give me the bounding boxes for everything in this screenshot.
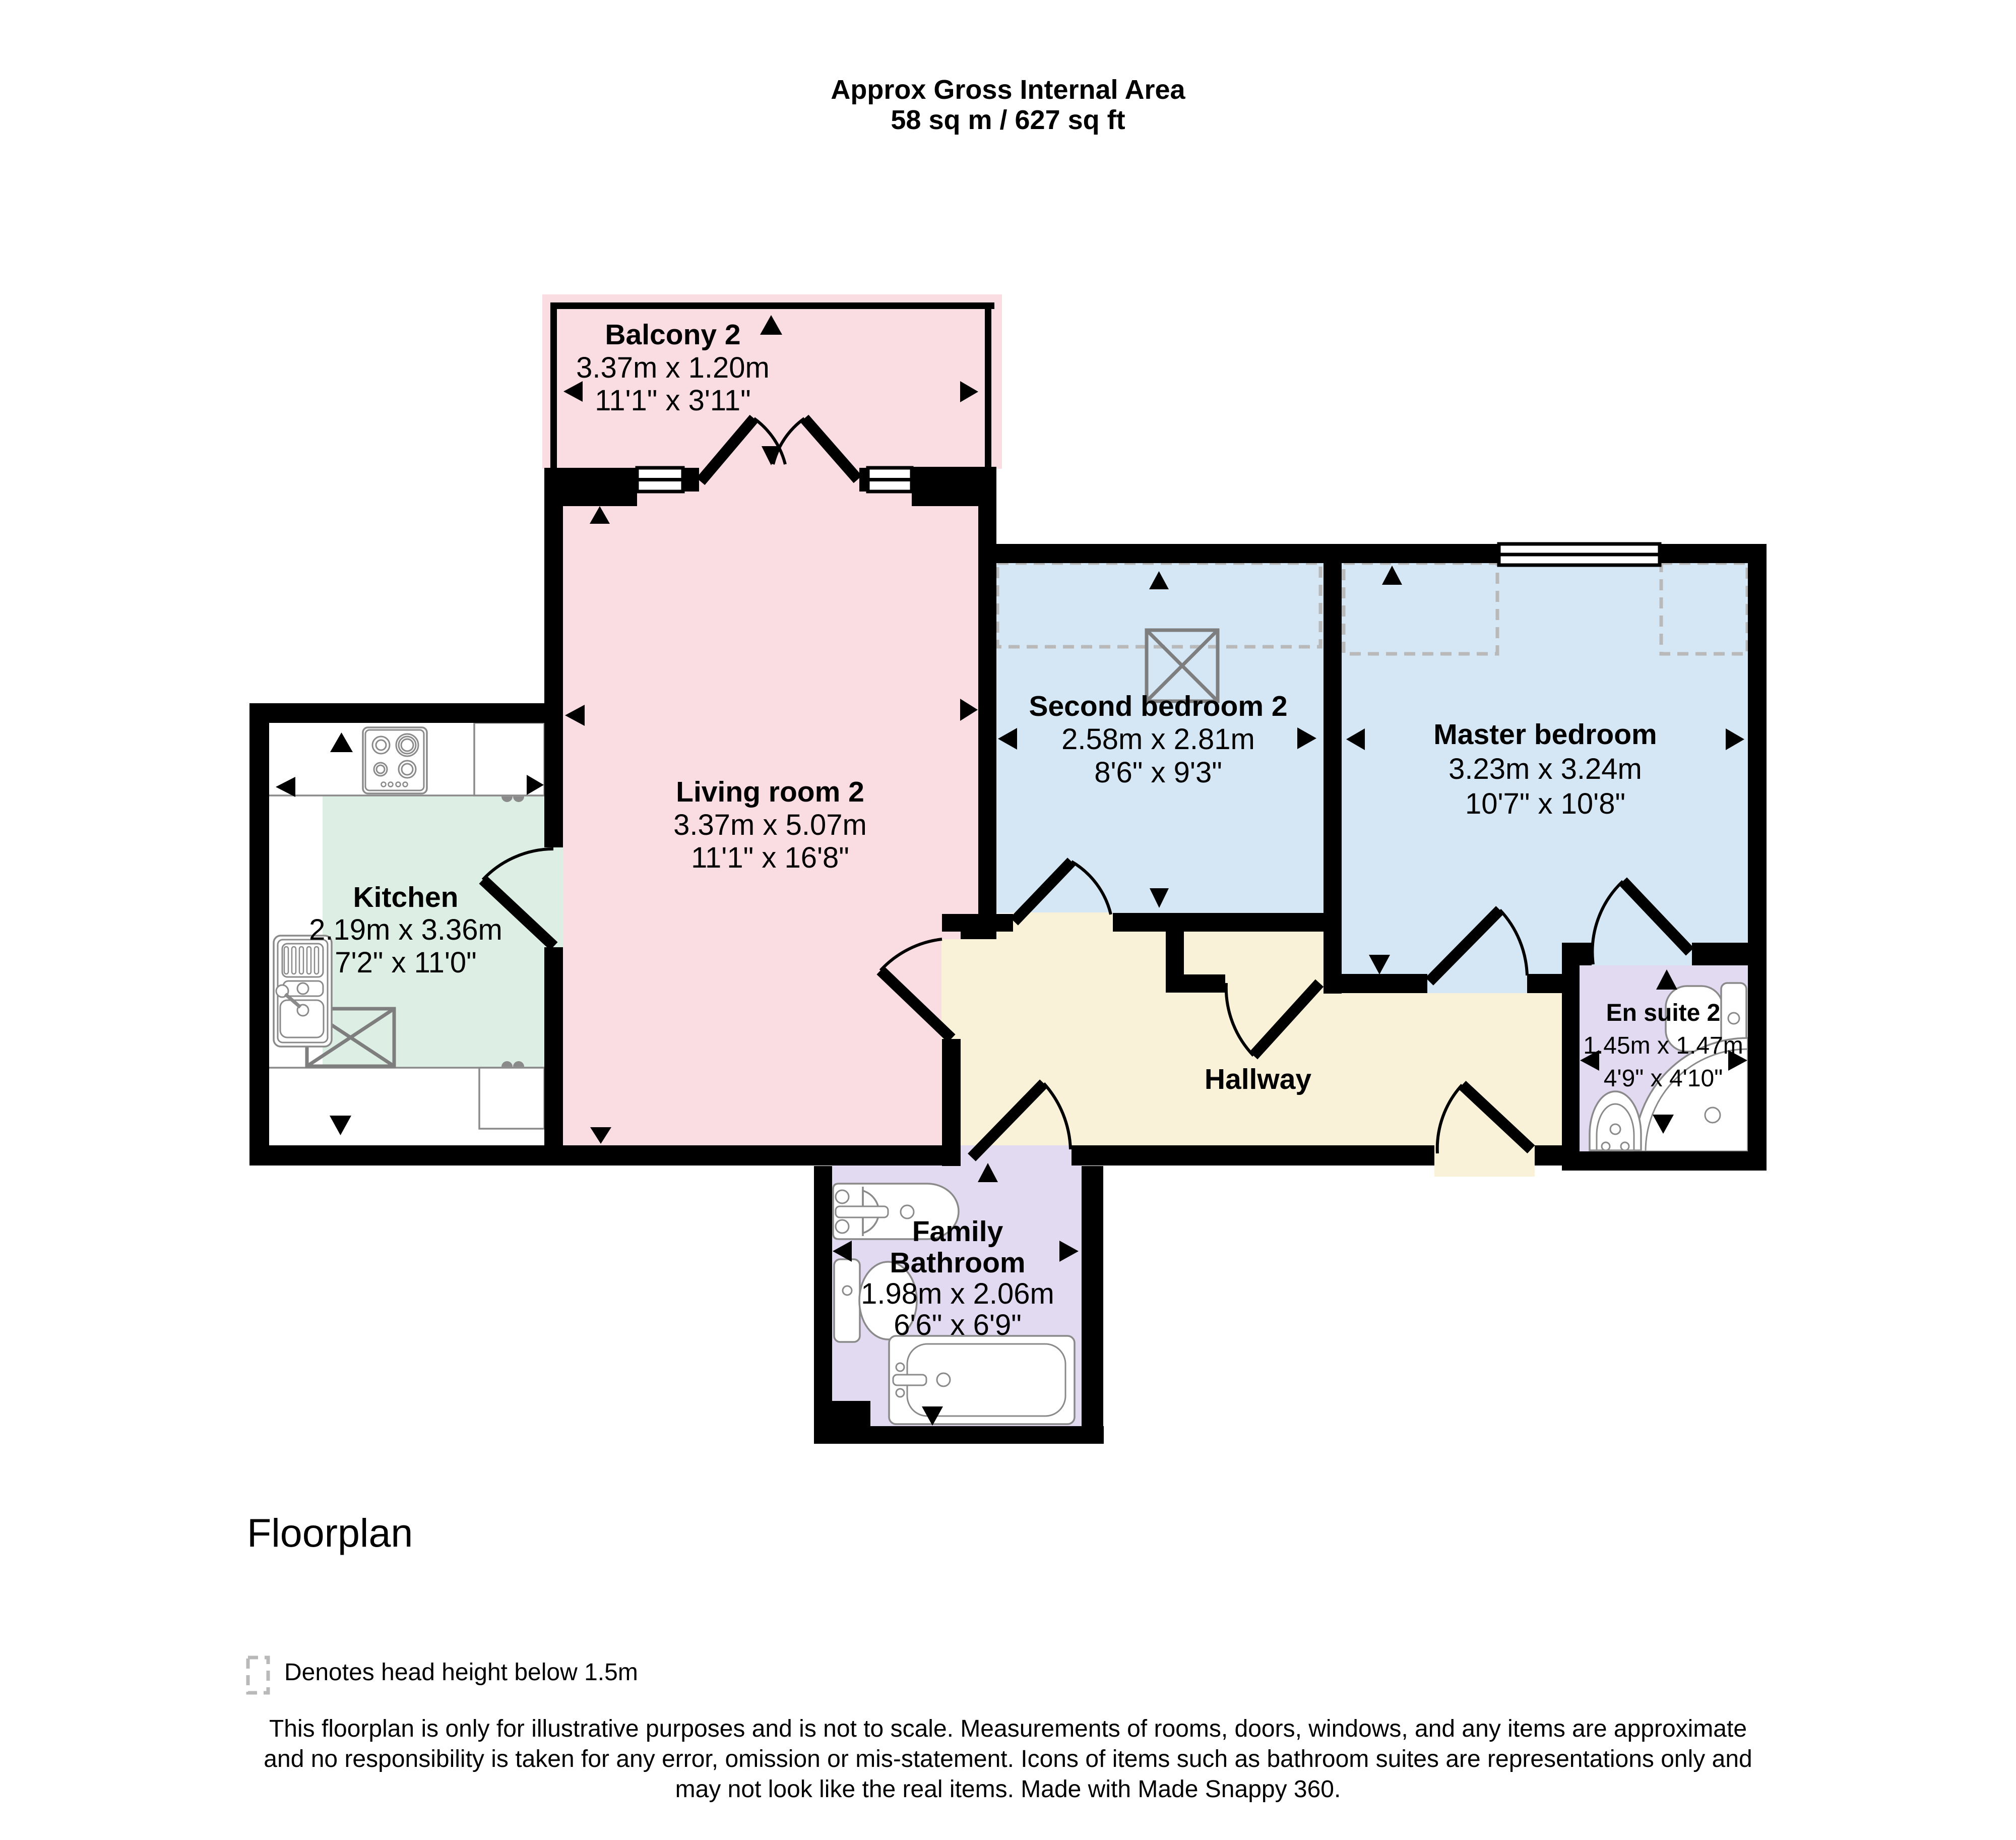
svg-text:and no responsibility is taken: and no responsibility is taken for any e… <box>264 1746 1752 1772</box>
svg-text:Master bedroom: Master bedroom <box>1433 718 1657 751</box>
svg-text:may not look like the real ite: may not look like the real items. Made w… <box>675 1776 1341 1803</box>
svg-text:Balcony 2: Balcony 2 <box>605 319 740 351</box>
svg-text:3.37m x 5.07m: 3.37m x 5.07m <box>673 809 867 841</box>
svg-text:6'6" x 6'9": 6'6" x 6'9" <box>894 1309 1022 1341</box>
svg-text:2.58m x 2.81m: 2.58m x 2.81m <box>1061 723 1255 756</box>
svg-text:Bathroom: Bathroom <box>890 1247 1025 1279</box>
svg-text:Living room 2: Living room 2 <box>676 776 864 808</box>
svg-text:Hallway: Hallway <box>1205 1063 1312 1095</box>
svg-text:Kitchen: Kitchen <box>353 881 458 913</box>
svg-text:7'2" x 11'0": 7'2" x 11'0" <box>335 946 477 979</box>
svg-text:Floorplan: Floorplan <box>247 1510 413 1555</box>
svg-text:58 sq m / 627 sq ft: 58 sq m / 627 sq ft <box>891 105 1125 135</box>
svg-text:Denotes head height below 1.5m: Denotes head height below 1.5m <box>284 1659 638 1686</box>
svg-text:Approx Gross Internal Area: Approx Gross Internal Area <box>831 75 1185 105</box>
svg-text:1.45m x 1.47m: 1.45m x 1.47m <box>1583 1032 1743 1059</box>
svg-text:Second bedroom 2: Second bedroom 2 <box>1029 690 1287 722</box>
svg-text:8'6" x 9'3": 8'6" x 9'3" <box>1094 756 1222 789</box>
svg-text:1.98m x 2.06m: 1.98m x 2.06m <box>861 1277 1054 1310</box>
svg-text:4'9" x 4'10": 4'9" x 4'10" <box>1604 1065 1723 1092</box>
svg-text:11'1" x 3'11": 11'1" x 3'11" <box>595 384 750 417</box>
svg-text:This floorplan is only for ill: This floorplan is only for illustrative … <box>269 1715 1747 1742</box>
svg-text:11'1" x 16'8": 11'1" x 16'8" <box>691 841 849 874</box>
svg-text:10'7" x 10'8": 10'7" x 10'8" <box>1465 787 1625 820</box>
svg-text:3.23m x 3.24m: 3.23m x 3.24m <box>1448 753 1642 785</box>
svg-text:3.37m x 1.20m: 3.37m x 1.20m <box>576 351 770 384</box>
svg-text:En suite 2: En suite 2 <box>1606 1000 1721 1026</box>
svg-text:2.19m x 3.36m: 2.19m x 3.36m <box>309 913 502 946</box>
svg-text:Family: Family <box>912 1215 1003 1248</box>
